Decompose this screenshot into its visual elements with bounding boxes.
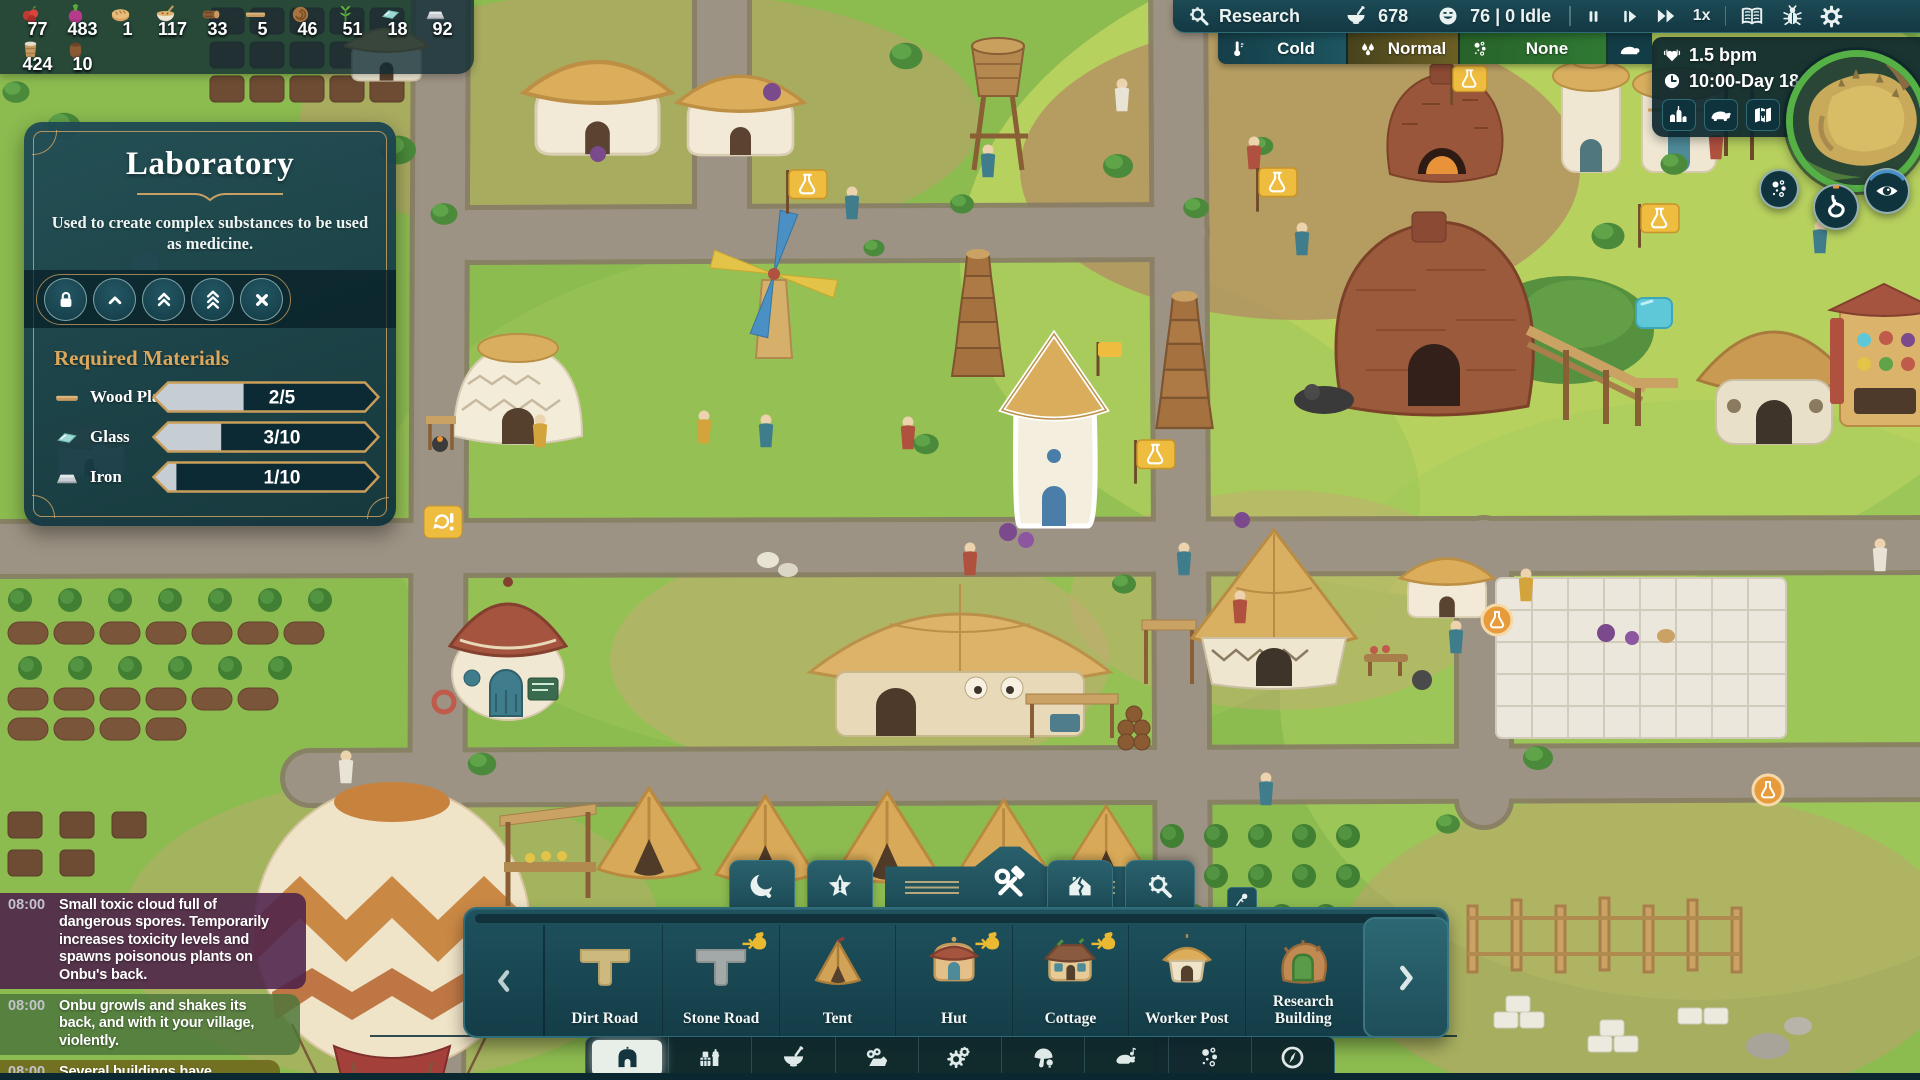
minimap-onbu: [1793, 57, 1920, 185]
build-menu-panel: Dirt Road Stone Road Tent Hut Cottage Wo…: [463, 907, 1449, 1038]
resource-herbs: 51: [323, 3, 368, 38]
tab-damaged-buildings[interactable]: [1047, 860, 1113, 910]
stomach-icon: [1821, 192, 1851, 222]
bottom-edge-strip: [0, 1073, 1920, 1080]
tab-farming[interactable]: [729, 860, 795, 910]
dirt-road-icon: [576, 933, 634, 991]
storage-crates-icon: [697, 1044, 724, 1071]
onbu-view-button[interactable]: [1704, 99, 1738, 131]
title-divider: [135, 190, 285, 209]
pause-button[interactable]: [1583, 6, 1604, 27]
spores-gauge-icon: [1767, 177, 1791, 201]
resource-bread: 1: [98, 3, 143, 38]
priority-up-button[interactable]: [93, 278, 136, 321]
resource-log: 33: [188, 3, 233, 38]
cost-badge-icon: [1087, 927, 1121, 957]
game-viewport: 77 483 1 117 33 5 46 51 18 92 424 10 Lab…: [0, 0, 1920, 1080]
event-onbu-growls[interactable]: 08:00 Onbu growls and shakes its back, a…: [0, 994, 300, 1055]
gear-magnifier-icon: [1145, 871, 1175, 901]
build-item-research-building[interactable]: Research Building: [1246, 925, 1361, 1036]
mushroom-icon: [1030, 1044, 1057, 1071]
village-icon: [1667, 103, 1691, 127]
clock-icon: [1662, 71, 1682, 91]
food-bowl-icon: [1344, 4, 1368, 28]
resource-beetroot: 483: [53, 3, 98, 38]
panel-button-strip: [24, 270, 396, 328]
required-materials-header: Required Materials: [54, 346, 229, 371]
eye-icon: [1872, 176, 1902, 206]
category-onbu[interactable]: [1085, 1037, 1168, 1078]
resource-fossil: 46: [278, 3, 323, 38]
spores-indicator: None: [1460, 33, 1608, 64]
compass-icon: [1279, 1044, 1306, 1071]
eye-gauge-button[interactable]: [1864, 168, 1910, 214]
minimap[interactable]: [1786, 50, 1920, 192]
star-exclamation-icon: [825, 871, 855, 901]
category-spores[interactable]: [1169, 1037, 1252, 1078]
wood-plank-progress-bar: 2/5: [152, 381, 380, 413]
tab-important[interactable]: [807, 860, 873, 910]
happiness-icon: [1436, 4, 1460, 28]
priority-double-up-button[interactable]: [142, 278, 185, 321]
bowl-spoon-icon: [780, 1044, 807, 1071]
humidity-icon: [1358, 39, 1378, 59]
resource-berries: 77: [8, 3, 53, 38]
conditions-bar: Cold Normal None: [1218, 33, 1652, 64]
resource-panel: 77 483 1 117 33 5 46 51 18 92 424 10: [0, 0, 474, 74]
laboratory-panel: Laboratory Used to create complex substa…: [24, 122, 396, 526]
resource-clay-pot: 10: [53, 38, 98, 73]
material-row-iron: Iron 1/10: [24, 458, 396, 498]
broken-house-icon: [1065, 871, 1095, 901]
build-item-hut[interactable]: Hut: [896, 925, 1012, 1036]
research-label[interactable]: Research: [1219, 6, 1300, 27]
svg-text:3/10: 3/10: [264, 428, 301, 449]
food-count: 678: [1378, 6, 1408, 27]
chevron-left-icon: [489, 963, 519, 999]
cost-badge-icon: [738, 927, 772, 957]
iron-icon: [54, 465, 80, 491]
priority-triple-up-button[interactable]: [191, 278, 234, 321]
glass-icon: [54, 425, 80, 451]
onbu-music-icon: [1113, 1044, 1140, 1071]
material-row-wood-plank: Wood Plank 2/5: [24, 378, 396, 418]
close-icon: [249, 287, 275, 313]
material-row-glass: Glass 3/10: [24, 418, 396, 458]
tab-ornament-lines: [905, 881, 959, 894]
panel-corner-ornament: [367, 497, 389, 519]
resource-water: 424: [8, 38, 53, 73]
svg-text:2/5: 2/5: [269, 388, 296, 409]
resource-plank: 5: [233, 3, 278, 38]
lock-icon: [53, 287, 79, 313]
category-materials[interactable]: [836, 1037, 919, 1078]
logs-stone-icon: [863, 1044, 890, 1071]
resource-iron: 92: [413, 3, 458, 38]
panel-description: Used to create complex substances to be …: [48, 212, 372, 255]
chevron-right-icon: [1389, 958, 1423, 998]
map-view-button[interactable]: [1746, 99, 1780, 131]
research-icon[interactable]: [1187, 4, 1211, 28]
onbu-icon: [1709, 103, 1733, 127]
stomach-gauge-button[interactable]: [1813, 184, 1859, 230]
category-farming[interactable]: [1002, 1037, 1085, 1078]
time-value: 10:00-Day 18: [1689, 71, 1799, 92]
category-special[interactable]: [1252, 1037, 1334, 1078]
spores-cluster-icon: [1196, 1044, 1223, 1071]
spores-gauge-button[interactable]: [1759, 169, 1799, 209]
fast-forward-button[interactable]: [1653, 3, 1679, 29]
onbu-sleeping-icon: [1617, 36, 1643, 62]
hammer-wrench-icon: [991, 865, 1029, 903]
triple-chevron-up-icon: [200, 287, 226, 313]
drying-tarp: [1496, 578, 1786, 738]
onbu-sleep-indicator: [1608, 33, 1652, 64]
worker-post-icon: [1158, 933, 1216, 991]
lock-button[interactable]: [44, 278, 87, 321]
event-log: 08:00 Small toxic cloud full of dangerou…: [0, 893, 306, 1080]
humidity-indicator: Normal: [1348, 33, 1460, 64]
close-button[interactable]: [240, 278, 283, 321]
villager-count: 76 | 0 Idle: [1470, 6, 1551, 27]
svg-text:1/10: 1/10: [264, 468, 301, 489]
heartbeat-icon: [1662, 45, 1682, 65]
research-building-icon: [1274, 933, 1332, 991]
settings-gear-icon[interactable]: [1819, 4, 1844, 29]
category-storage[interactable]: [669, 1037, 752, 1078]
pushpin-icon: [1234, 891, 1251, 908]
scroll-left-button[interactable]: [465, 925, 545, 1036]
play-button[interactable]: [1618, 5, 1641, 28]
thermometer-icon: [1228, 39, 1248, 59]
scroll-right-button[interactable]: [1363, 917, 1449, 1038]
wood-plank-icon: [54, 385, 80, 411]
bug-report-icon[interactable]: [1780, 4, 1805, 29]
category-production[interactable]: [919, 1037, 1002, 1078]
village-view-button[interactable]: [1662, 99, 1696, 131]
build-item-cottage[interactable]: Cottage: [1013, 925, 1129, 1036]
category-housing[interactable]: [586, 1037, 669, 1078]
build-item-dirt-road[interactable]: Dirt Road: [547, 925, 663, 1036]
build-item-tent[interactable]: Tent: [780, 925, 896, 1036]
double-chevron-up-icon: [151, 287, 177, 313]
spores-icon: [1470, 39, 1490, 59]
glass-progress-bar: 3/10: [152, 421, 380, 453]
map-icon: [1751, 103, 1775, 127]
chevron-up-icon: [102, 287, 128, 313]
build-item-worker-post[interactable]: Worker Post: [1129, 925, 1245, 1036]
resource-porridge: 117: [143, 3, 188, 38]
tent-icon: [809, 933, 867, 991]
build-category-bar: [585, 1036, 1335, 1078]
house-arch-icon: [614, 1044, 641, 1071]
iron-progress-bar: 1/10: [152, 461, 380, 493]
heartbeat-value: 1.5 bpm: [1689, 45, 1757, 66]
build-item-stone-road[interactable]: Stone Road: [663, 925, 779, 1036]
journal-icon[interactable]: [1738, 3, 1766, 29]
panel-title: Laboratory: [24, 146, 396, 183]
speed-label: 1x: [1693, 7, 1711, 25]
tab-research[interactable]: [1125, 860, 1195, 910]
event-toxic-cloud[interactable]: 08:00 Small toxic cloud full of dangerou…: [0, 893, 306, 989]
top-status-bar: Research 678 76 | 0 Idle 1x: [1173, 0, 1920, 33]
category-food[interactable]: [752, 1037, 835, 1078]
sickle-icon: [747, 871, 777, 901]
cost-badge-icon: [971, 927, 1005, 957]
gears-icon: [946, 1044, 973, 1071]
temperature-indicator: Cold: [1218, 33, 1348, 64]
resource-glass: 18: [368, 3, 413, 38]
